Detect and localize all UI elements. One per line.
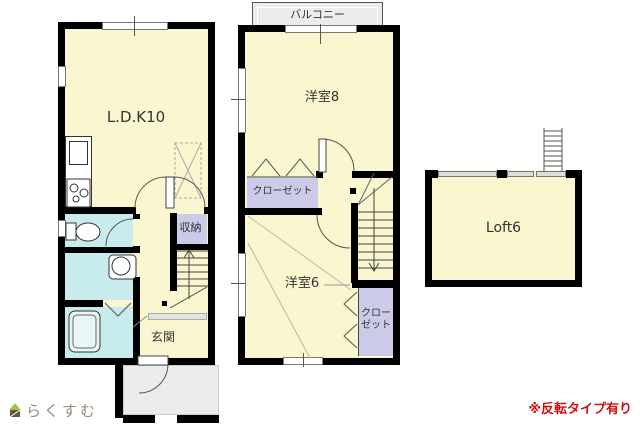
bathtub-icon [69,311,100,352]
bathroom-fold-door [105,303,131,316]
fridge-space [175,143,201,198]
bedroom8-door [319,139,354,172]
closet-right-fold-doors [344,292,357,348]
ceiling-slope-lines [248,216,351,358]
ldk-door [135,177,205,208]
toilet-icon [66,223,100,241]
floorplan-canvas: バルコニー 収納 L.D.K10 玄関 クローゼット クローゼット [0,0,640,425]
brand-text: らくすむ [26,400,98,421]
washroom-sink-icon [109,255,136,279]
closet-left-fold-doors [247,159,318,177]
loft-ladder-icon [544,128,562,172]
linework-overlay [0,0,640,425]
bedroom6-door-arc [317,215,350,248]
toilet-door-arc [106,219,133,246]
stove-icon [67,179,90,207]
front-door [138,356,168,393]
entrance-diagonal [133,316,147,327]
f2-stairs [350,173,393,271]
reverse-type-note: ※反転タイプ有り [520,398,632,417]
f1-stairs [162,250,208,308]
brand-house-icon [9,403,22,418]
